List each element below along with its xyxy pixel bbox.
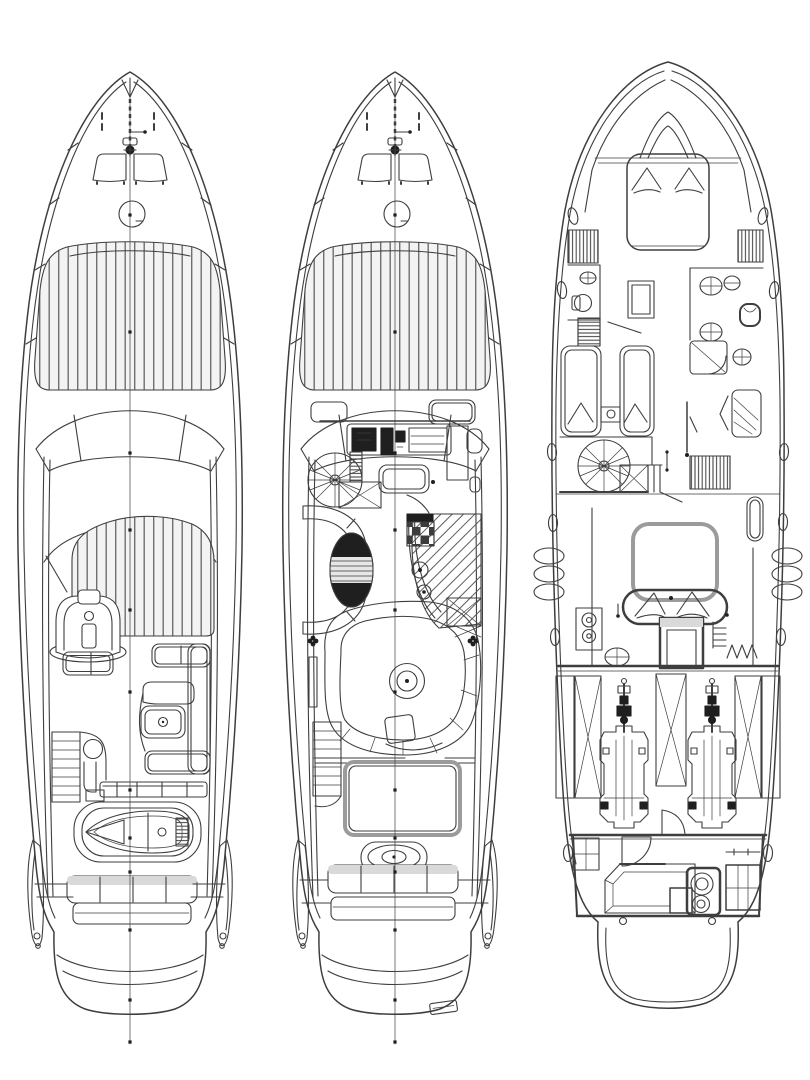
companionway-stairs (313, 722, 341, 807)
tender-on-garage (74, 802, 201, 862)
cockpit-table (141, 706, 185, 738)
spiral-staircase (308, 452, 381, 508)
aft-crew-cabin (570, 835, 766, 925)
companion-bench (63, 652, 113, 675)
master-cabin (576, 508, 757, 668)
wet-bar (100, 782, 207, 797)
guest-cabin (561, 346, 654, 436)
main-deck-plan (283, 72, 508, 1044)
deck-plan-drawing (0, 0, 810, 1080)
starboard-head (690, 268, 763, 374)
spiral-staircase (578, 440, 660, 492)
lower-deck-plan (534, 62, 802, 1008)
centerline (393, 97, 396, 1044)
engine-room (556, 666, 780, 834)
ladder-stairs (52, 732, 106, 802)
oval-table (329, 533, 374, 607)
l-shaped-settee (139, 644, 210, 774)
flybridge-deck-plan (18, 72, 243, 1044)
helm-bench (379, 465, 435, 513)
engine-starboard (688, 679, 736, 829)
swim-platform (606, 928, 731, 1002)
starboard-cabin (690, 390, 763, 541)
foredeck-line (595, 158, 741, 163)
fenders (534, 548, 802, 600)
cockpit-hatch (345, 762, 460, 835)
deck-plan-sheet (0, 0, 810, 1080)
engine-port (600, 679, 648, 829)
galley (407, 514, 481, 637)
port-head (568, 265, 600, 346)
